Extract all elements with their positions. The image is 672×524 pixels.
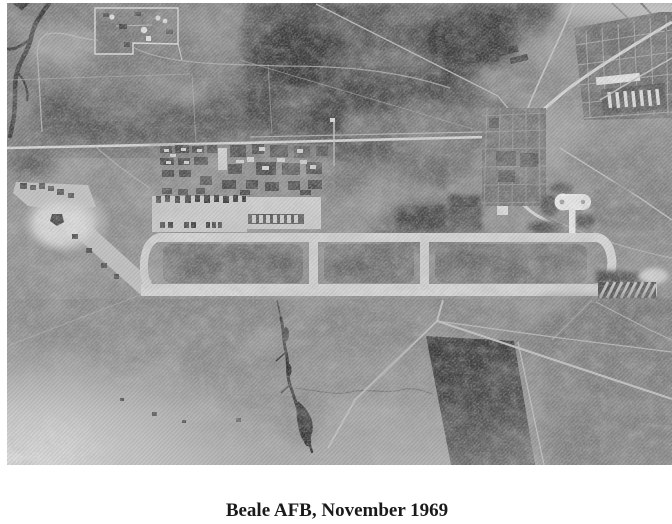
- svg-text:Beale AFB, November 1969: Beale AFB, November 1969: [226, 500, 448, 521]
